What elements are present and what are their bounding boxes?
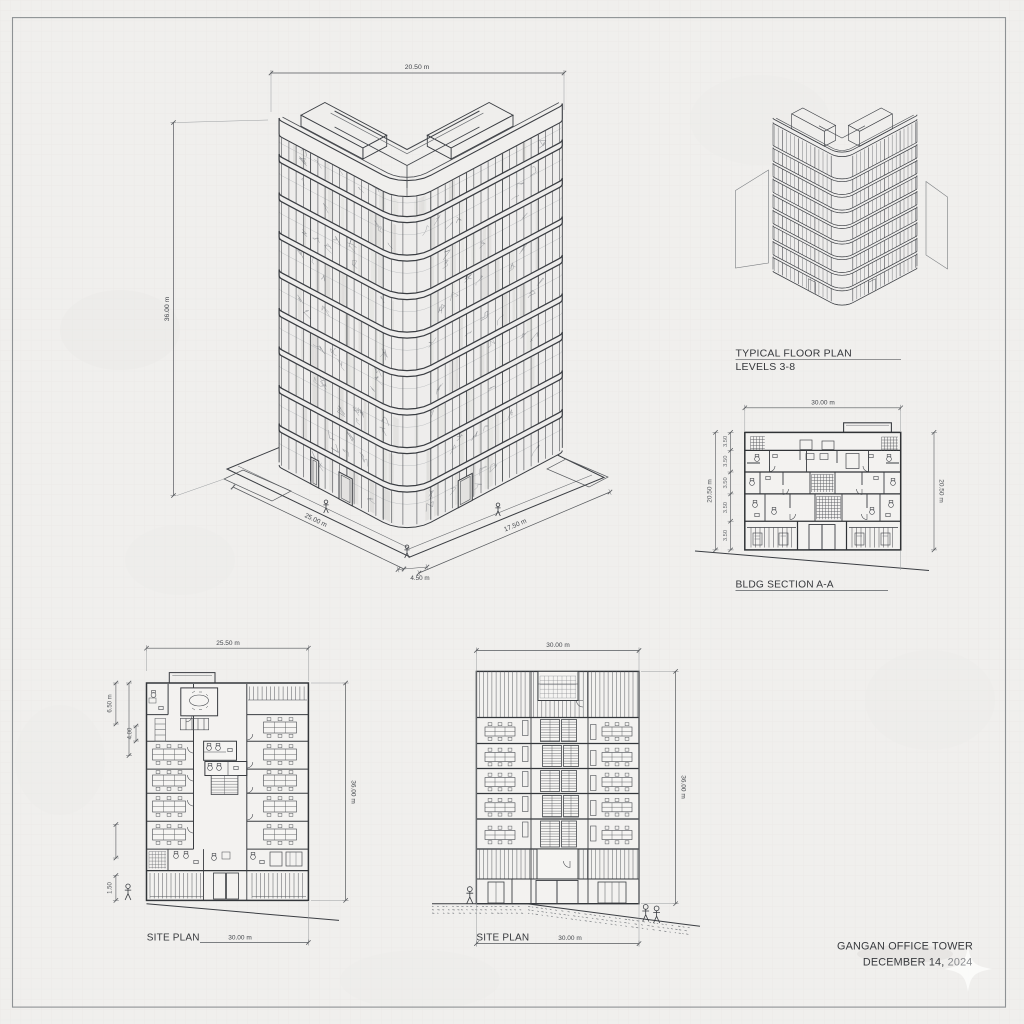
svg-text:36.00 m: 36.00 m — [164, 296, 171, 321]
svg-text:3.50: 3.50 — [723, 502, 729, 513]
svg-text:4.50 m: 4.50 m — [410, 575, 429, 582]
svg-text:1.50: 1.50 — [108, 882, 114, 894]
svg-text:3.50: 3.50 — [723, 530, 729, 541]
svg-text:3.50: 3.50 — [723, 436, 729, 447]
svg-text:30.00 m: 30.00 m — [558, 935, 582, 942]
svg-text:4.00: 4.00 — [128, 727, 134, 739]
svg-text:36.00 m: 36.00 m — [350, 780, 357, 804]
svg-text:20.50 m: 20.50 m — [938, 479, 945, 503]
svg-text:SITE PLAN: SITE PLAN — [147, 933, 200, 944]
svg-text:20.50 m: 20.50 m — [405, 64, 430, 71]
svg-text:DECEMBER 14, 2024: DECEMBER 14, 2024 — [863, 956, 973, 968]
svg-text:SITE PLAN: SITE PLAN — [476, 933, 529, 944]
svg-text:25.50 m: 25.50 m — [216, 640, 240, 647]
svg-text:TYPICAL FLOOR PLAN: TYPICAL FLOOR PLAN — [736, 348, 852, 360]
svg-text:3.50: 3.50 — [723, 456, 729, 467]
svg-text:30.00 m: 30.00 m — [228, 935, 252, 942]
svg-text:GANGAN OFFICE TOWER: GANGAN OFFICE TOWER — [837, 941, 973, 953]
svg-text:30.00 m: 30.00 m — [811, 400, 835, 407]
svg-text:36.00 m: 36.00 m — [680, 775, 687, 799]
svg-text:BLDG SECTION A-A: BLDG SECTION A-A — [736, 580, 834, 591]
svg-text:30.00 m: 30.00 m — [546, 642, 570, 649]
svg-text:3.50: 3.50 — [723, 477, 729, 488]
svg-text:6.50 m: 6.50 m — [108, 694, 114, 712]
svg-text:20.50 m: 20.50 m — [707, 479, 714, 503]
svg-text:LEVELS 3-8: LEVELS 3-8 — [736, 361, 796, 373]
